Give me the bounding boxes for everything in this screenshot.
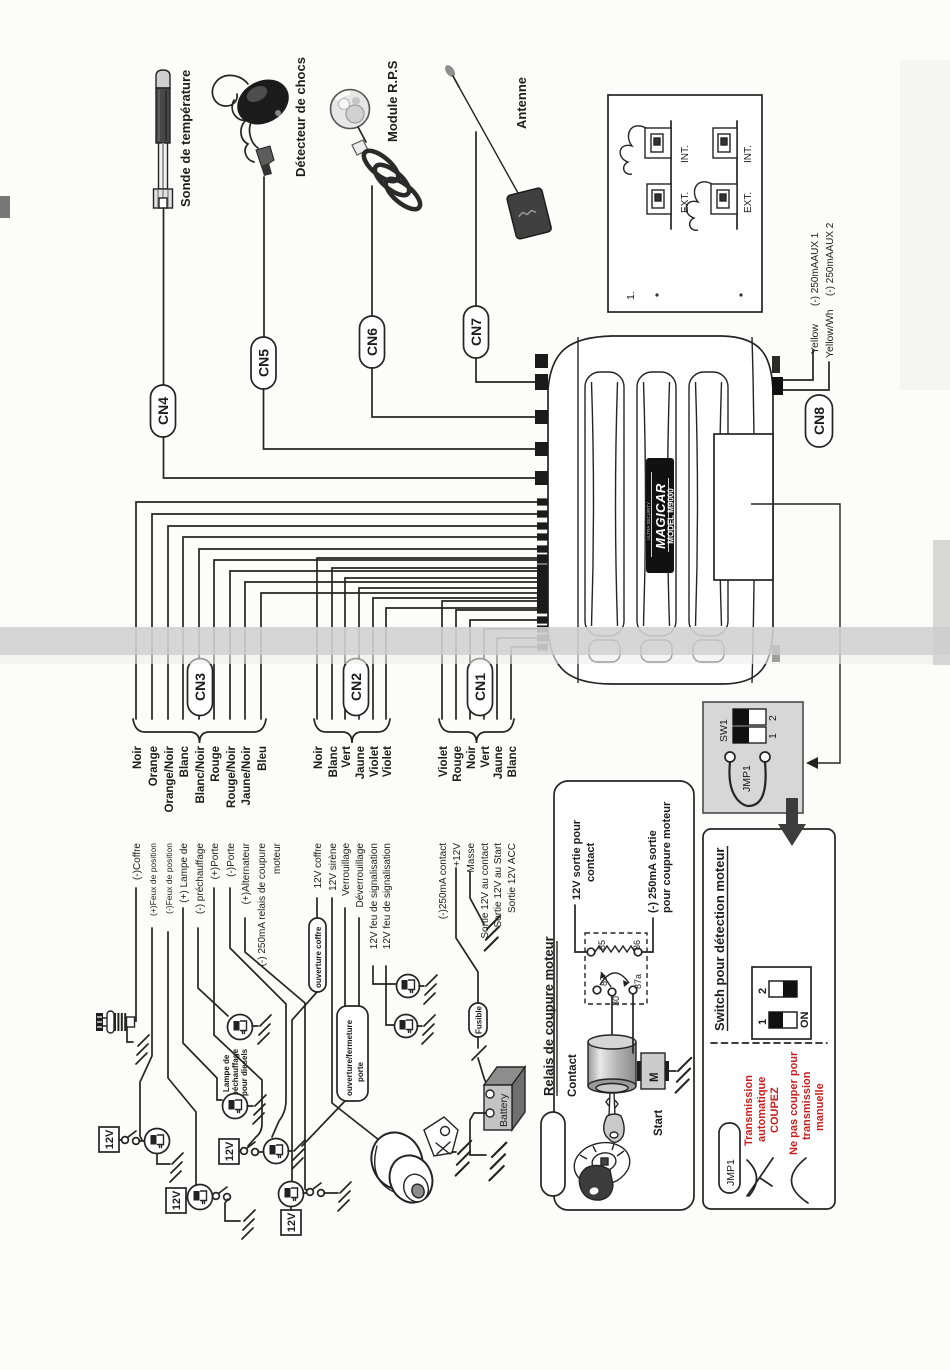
svg-text:12V feu de signalisation: 12V feu de signalisation — [382, 843, 393, 949]
svg-text:2: 2 — [757, 988, 769, 994]
svg-text:12V: 12V — [171, 1190, 183, 1210]
svg-text:transmission: transmission — [801, 1071, 813, 1140]
svg-text:Détecteur de chocs: Détecteur de chocs — [293, 57, 308, 177]
svg-text:+12V: +12V — [452, 843, 463, 867]
svg-text:Yellow/Wh: Yellow/Wh — [824, 309, 836, 358]
svg-text:Switch pour détection moteur: Switch pour détection moteur — [712, 848, 727, 1031]
svg-text:moteur: moteur — [272, 842, 283, 874]
svg-text:(-) 250mA sortie: (-) 250mA sortie — [647, 830, 659, 913]
svg-text:1: 1 — [767, 733, 779, 739]
svg-text:Ne pas couper pour: Ne pas couper pour — [788, 1051, 800, 1155]
svg-text:Sortie 12V ACC: Sortie 12V ACC — [507, 843, 518, 913]
svg-text:M: M — [649, 1072, 661, 1082]
svg-text:INT.: INT. — [743, 145, 754, 163]
svg-text:Transmission: Transmission — [743, 1075, 755, 1146]
svg-text:pour diesels: pour diesels — [240, 1048, 249, 1096]
svg-text:ULTRA SECURITY: ULTRA SECURITY — [646, 502, 651, 540]
svg-text:(+)Porte: (+)Porte — [210, 843, 221, 880]
svg-text:Sortie 12V au contact: Sortie 12V au contact — [480, 843, 491, 939]
svg-text:Lampe de: Lampe de — [222, 1054, 231, 1092]
svg-text:(+)Feux de position: (+)Feux de position — [148, 843, 158, 916]
svg-text:Sonde de température: Sonde de température — [178, 70, 193, 207]
svg-text:Blanc/Noir: Blanc/Noir — [195, 745, 207, 803]
svg-text:Relais de coupure moteur: Relais de coupure moteur — [541, 936, 556, 1096]
svg-text:(-)Coffre: (-)Coffre — [132, 843, 143, 880]
svg-text:Vert: Vert — [480, 746, 492, 768]
svg-text:(-) 250mAAUX 1: (-) 250mAAUX 1 — [810, 232, 821, 306]
svg-text:CN7: CN7 — [468, 318, 484, 346]
svg-text:12V: 12V — [104, 1129, 116, 1149]
svg-text:EXT.: EXT. — [743, 192, 754, 213]
svg-text:85: 85 — [597, 940, 607, 950]
svg-text:Jaune: Jaune — [355, 746, 367, 779]
svg-text:ON: ON — [799, 1011, 811, 1028]
svg-text:MODEL M9000: MODEL M9000 — [667, 488, 676, 544]
svg-text:(-)Porte: (-)Porte — [226, 843, 237, 877]
svg-text:12V sortie pour: 12V sortie pour — [571, 819, 583, 900]
svg-text:1: 1 — [757, 1019, 769, 1025]
svg-text:ouverture/fermeture: ouverture/fermeture — [345, 1019, 354, 1096]
svg-text:CN8: CN8 — [811, 407, 827, 435]
svg-text:Orange/Noir: Orange/Noir — [164, 745, 176, 812]
svg-text:(-) 250mA relais de coupure: (-) 250mA relais de coupure — [257, 843, 268, 967]
svg-text:CN3: CN3 — [192, 673, 208, 701]
svg-text:Blanc: Blanc — [328, 745, 340, 777]
svg-text:Antenne: Antenne — [514, 77, 529, 129]
svg-text:(+)Alternateur: (+)Alternateur — [241, 842, 252, 904]
svg-text:Blanc: Blanc — [179, 745, 191, 777]
svg-text:1.: 1. — [625, 291, 637, 300]
svg-text:CN6: CN6 — [364, 328, 380, 356]
svg-text:Violet: Violet — [369, 746, 381, 777]
svg-text:Noir: Noir — [466, 745, 478, 769]
svg-text:porte: porte — [356, 1061, 365, 1082]
svg-text:12V feu de signalisation: 12V feu de signalisation — [369, 843, 380, 949]
svg-text:86: 86 — [632, 940, 642, 950]
svg-text:JMP1: JMP1 — [725, 1159, 737, 1186]
svg-text:(-) 250mAAUX 2: (-) 250mAAUX 2 — [825, 222, 836, 296]
svg-text:Jaune: Jaune — [493, 746, 505, 779]
svg-text:Noir: Noir — [132, 745, 144, 769]
svg-text:(-)Feux de position: (-)Feux de position — [164, 843, 174, 914]
svg-text:ouverture coffre: ouverture coffre — [314, 926, 323, 988]
svg-text:Rouge: Rouge — [452, 746, 464, 782]
svg-text:COUPEZ: COUPEZ — [769, 1087, 781, 1133]
svg-text:(+) Lampe de: (+) Lampe de — [179, 843, 190, 903]
svg-text:pour coupure moteur: pour coupure moteur — [661, 801, 673, 913]
svg-text:87a: 87a — [633, 974, 643, 989]
svg-text:Blanc: Blanc — [507, 745, 519, 777]
svg-text:Yellow: Yellow — [809, 324, 821, 354]
svg-text:automatique: automatique — [756, 1077, 768, 1142]
svg-text:2: 2 — [767, 715, 779, 721]
svg-text:Violet: Violet — [438, 746, 450, 777]
svg-text:Module R.P.S: Module R.P.S — [385, 60, 400, 142]
svg-text:12V: 12V — [286, 1212, 298, 1232]
svg-text:Rouge: Rouge — [210, 746, 222, 782]
svg-text:Start: Start — [653, 1110, 665, 1136]
svg-text:Bleu: Bleu — [257, 746, 269, 771]
svg-text:Contact: Contact — [567, 1054, 579, 1097]
svg-text:Violet: Violet — [382, 746, 394, 777]
svg-text:12V: 12V — [224, 1141, 236, 1161]
svg-text:Vert: Vert — [341, 746, 353, 768]
svg-text:12V sirène: 12V sirène — [328, 843, 339, 891]
svg-text:CN4: CN4 — [155, 397, 171, 425]
svg-text:CN2: CN2 — [348, 673, 364, 701]
svg-text:Sortie 12V au Start: Sortie 12V au Start — [493, 843, 504, 928]
svg-text:JMP1: JMP1 — [741, 765, 753, 792]
svg-text:Fusible: Fusible — [475, 1005, 484, 1034]
svg-text:CN1: CN1 — [472, 673, 488, 701]
svg-text:INT.: INT. — [680, 145, 691, 163]
svg-text:Masse: Masse — [466, 843, 477, 873]
svg-text:Jaune/Noir: Jaune/Noir — [241, 745, 253, 805]
svg-text:(-)250mA contact: (-)250mA contact — [438, 843, 449, 919]
svg-text:Noir: Noir — [313, 745, 325, 769]
svg-text:Rouge/Noir: Rouge/Noir — [226, 745, 238, 807]
svg-text:contact: contact — [585, 843, 597, 882]
svg-text:manuelle: manuelle — [814, 1083, 826, 1131]
svg-text:SW1: SW1 — [718, 719, 730, 742]
svg-text:(-) préchauffage: (-) préchauffage — [195, 843, 206, 914]
svg-text:Verrouillage: Verrouillage — [341, 843, 352, 896]
svg-text:Déverrouillage: Déverrouillage — [355, 843, 366, 908]
svg-text:CN5: CN5 — [256, 349, 272, 377]
svg-text:Orange: Orange — [148, 746, 160, 786]
svg-text:12V coffre: 12V coffre — [313, 843, 324, 889]
svg-text:Battery: Battery — [498, 1093, 510, 1127]
